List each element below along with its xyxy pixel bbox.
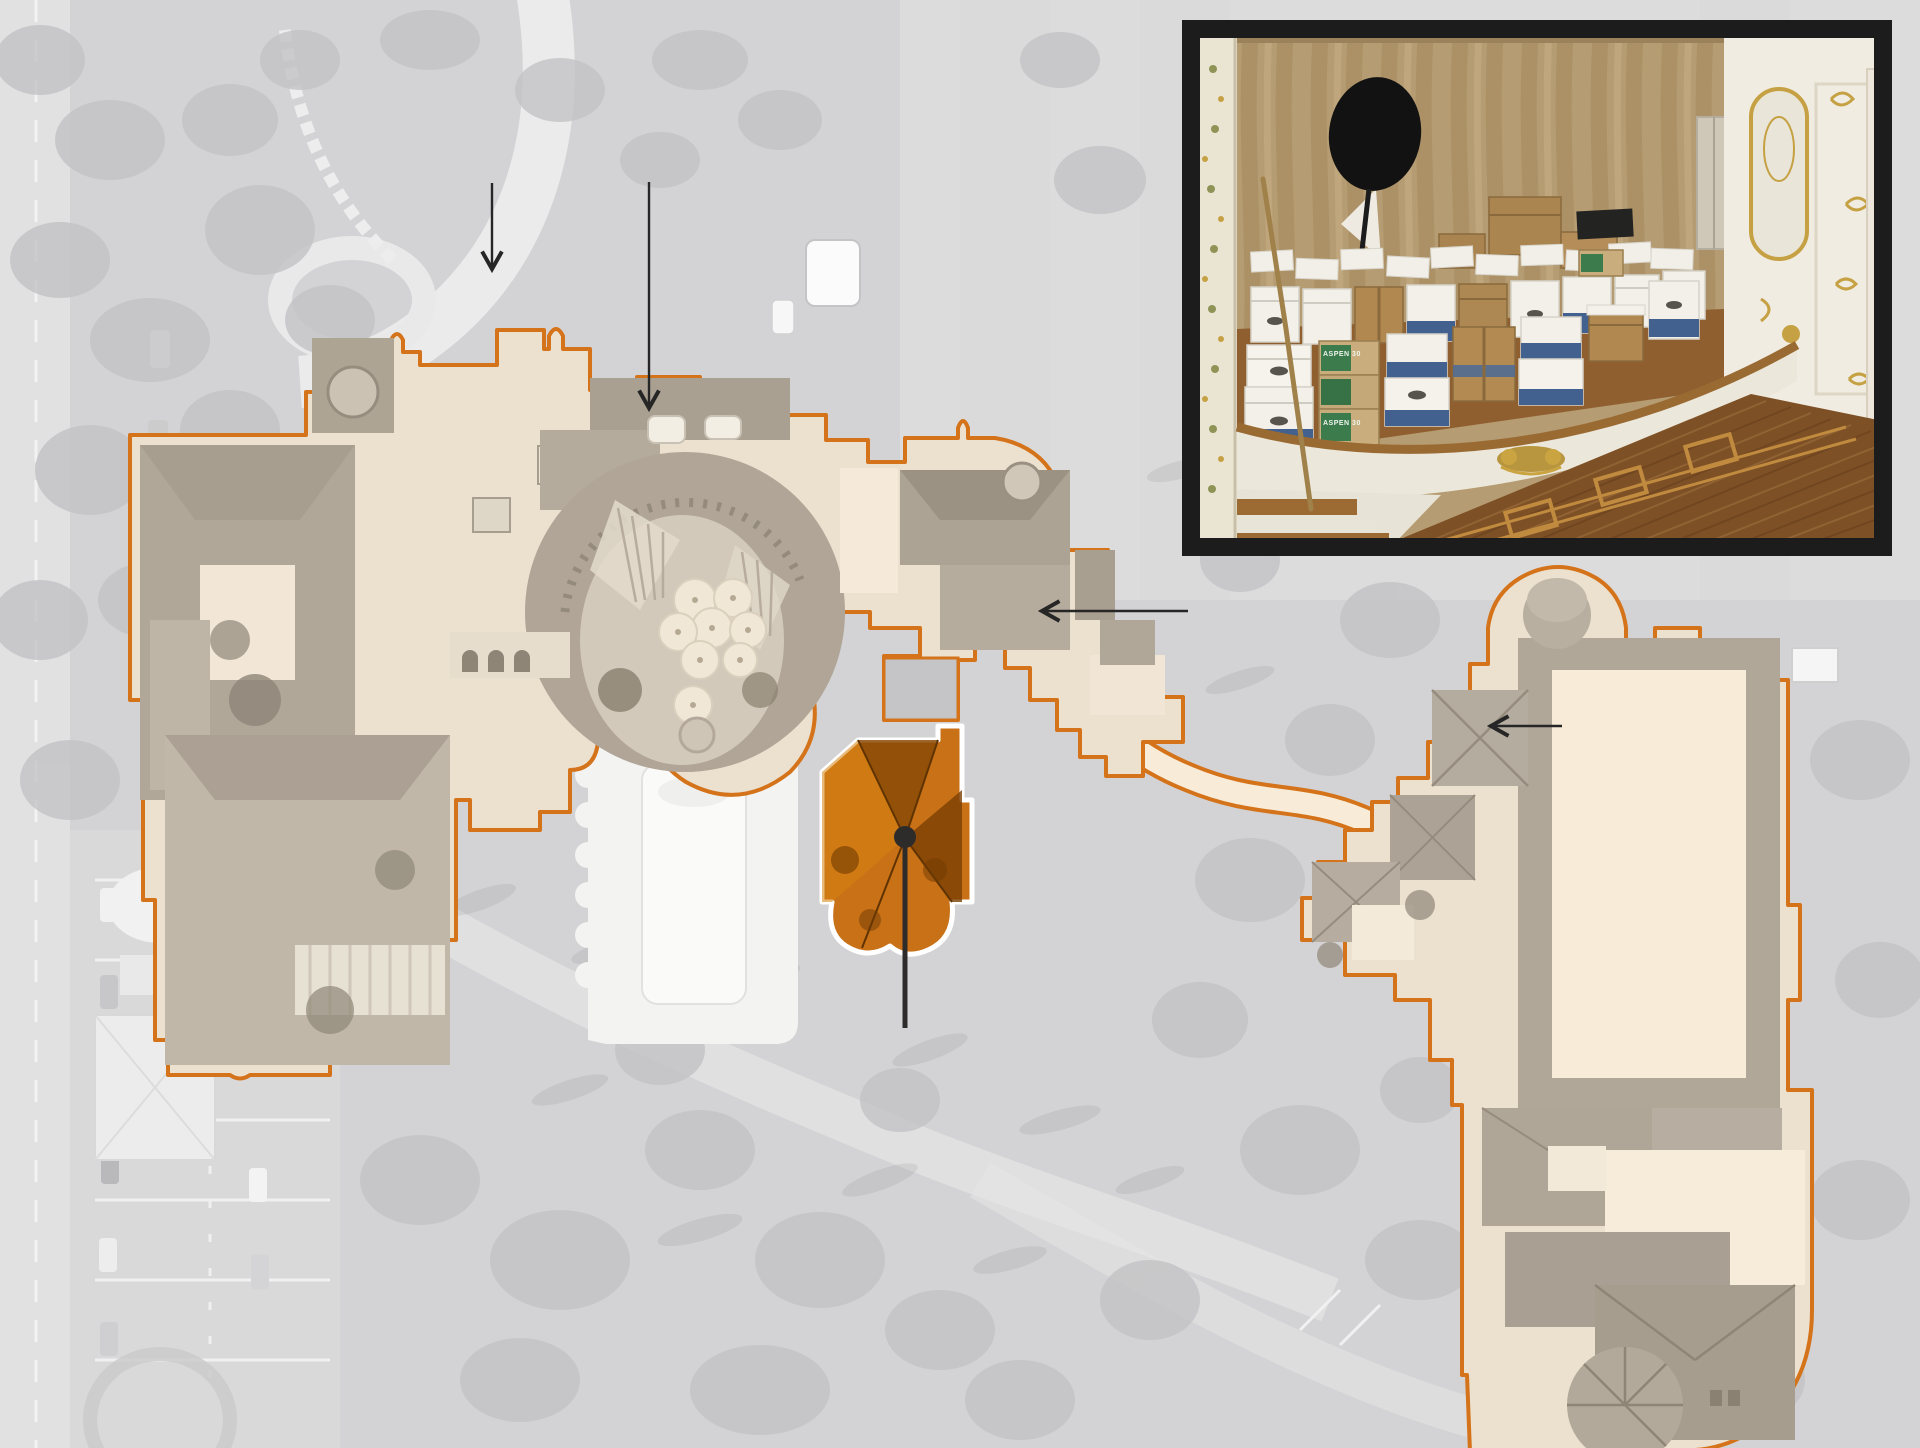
banker-box-blue [1649, 281, 1699, 339]
photo-inset: ASPEN 30 ASPEN 30 [1191, 29, 1883, 553]
entrance-awning [648, 416, 685, 443]
highlighted-building-marker-dot [894, 826, 916, 848]
banker-box-blue-stack [1519, 317, 1583, 405]
wall-sconce [1782, 325, 1800, 343]
cardboard-box [1587, 305, 1645, 361]
turret [328, 367, 378, 417]
annotated-aerial-graphic: ASPEN 30 ASPEN 30 [0, 0, 1920, 1448]
aspen-box-stack: ASPEN 30 ASPEN 30 [1319, 341, 1379, 445]
box-brand-label: ASPEN 30 [1323, 420, 1361, 427]
courtyard-palm [598, 668, 642, 712]
aspen-box [1579, 250, 1623, 276]
laptop-monitor [1576, 209, 1633, 240]
gold-crest [1497, 446, 1565, 474]
banker-box [1303, 289, 1351, 344]
cardboard-box-taped [1453, 327, 1515, 401]
banker-box-blue [1407, 285, 1455, 341]
entrance-awning [705, 416, 741, 439]
fountain [680, 718, 714, 752]
white-trailer [1792, 648, 1838, 682]
box-brand-label: ASPEN 30 [1323, 351, 1361, 358]
banker-box [1251, 287, 1299, 342]
banker-box-blue-stack [1385, 334, 1449, 426]
flat-roof-court [1552, 670, 1746, 1078]
wall-mirror [1751, 89, 1807, 259]
east-tower [1003, 463, 1041, 501]
service-courtyard [884, 658, 958, 720]
arched-colonnade [450, 632, 570, 678]
